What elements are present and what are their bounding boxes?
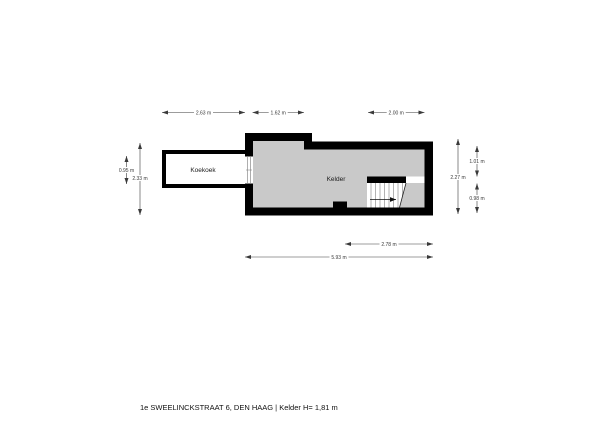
dimension-top-right: 2.00 m	[368, 110, 425, 117]
dimension-label: 2.33 m	[132, 176, 147, 182]
dimension-right-inner-bottom: 0.98 m	[468, 184, 487, 214]
dimension-label: 2.78 m	[381, 242, 396, 248]
dimension-label: 0.98 m	[469, 196, 484, 202]
dimension-label: 2.63 m	[196, 110, 211, 116]
dimension-bottom-total: 5.93 m	[245, 254, 433, 261]
dimension-top-koekoek: 2.63 m	[162, 110, 245, 117]
stair-head-wall	[367, 177, 406, 184]
dimension-label: 0.95 m	[119, 168, 134, 174]
caption: 1e SWEELINCKSTRAAT 6, DEN HAAG | Kelder …	[140, 403, 338, 412]
dimension-label: 5.93 m	[331, 255, 346, 261]
dimension-label: 1.01 m	[469, 159, 484, 165]
dimension-bottom-stairs: 2.78 m	[345, 241, 433, 248]
dimension-top-mid: 1.62 m	[253, 110, 305, 117]
dimension-right-outer: 2.27 m	[449, 139, 468, 214]
room-label-kelder: Kelder	[327, 176, 347, 183]
dimension-label: 1.62 m	[271, 110, 286, 116]
window	[245, 157, 253, 184]
dimension-left-outer: 2.33 m	[131, 143, 150, 215]
floorplan-svg: 2.63 m 1.62 m 2.00 m 0.95 m 2.33 m 2.27 …	[0, 0, 600, 424]
floorplan-canvas: 2.63 m 1.62 m 2.00 m 0.95 m 2.33 m 2.27 …	[0, 0, 600, 424]
room-label-koekoek: Koekoek	[190, 167, 216, 174]
dimension-label: 2.27 m	[450, 175, 465, 181]
stair-opening	[406, 177, 425, 184]
dimension-right-inner-top: 1.01 m	[468, 146, 487, 177]
dimension-label: 2.00 m	[389, 110, 404, 116]
wall-pier	[333, 202, 347, 209]
